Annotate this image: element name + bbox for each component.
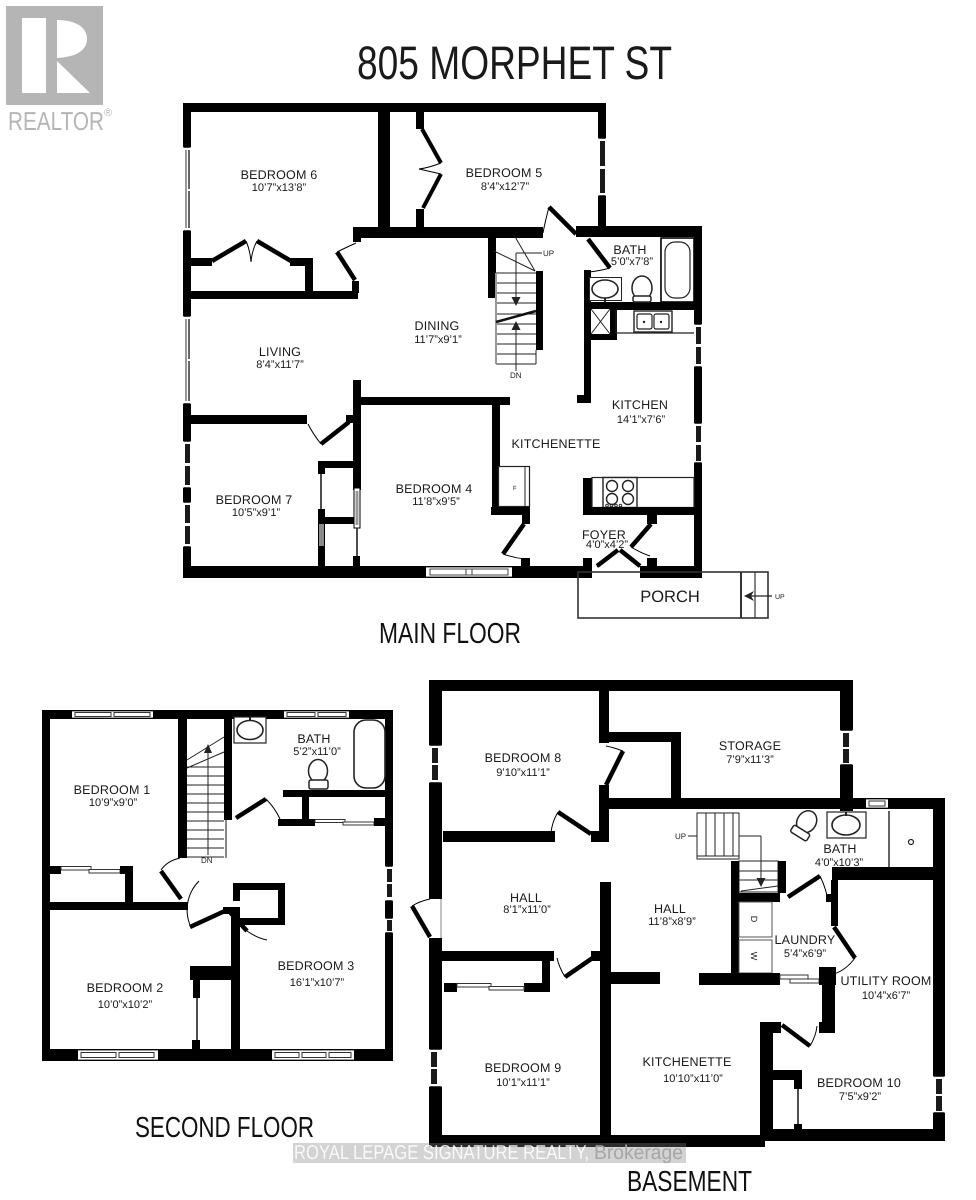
svg-text:BEDROOM 3: BEDROOM 3 (278, 959, 355, 973)
svg-text:BATH: BATH (297, 732, 330, 746)
svg-text:F: F (513, 485, 517, 492)
svg-text:BEDROOM 10: BEDROOM 10 (817, 1076, 901, 1090)
svg-text:5’0”x7’8”: 5’0”x7’8” (611, 256, 654, 268)
svg-text:KITCHEN: KITCHEN (612, 398, 668, 412)
svg-text:11’8”x8’9”: 11’8”x8’9” (648, 916, 696, 928)
svg-text:PORCH: PORCH (640, 588, 700, 606)
svg-text:ROYAL LEPAGE SIGNATURE REALTY,: ROYAL LEPAGE SIGNATURE REALTY, (294, 1142, 589, 1164)
svg-text:D: D (749, 916, 759, 923)
svg-text:BEDROOM 4: BEDROOM 4 (396, 482, 473, 496)
svg-text:5’2”x11’0”: 5’2”x11’0” (293, 746, 341, 758)
svg-text:HALL: HALL (510, 891, 542, 905)
svg-text:10’4”x6’7”: 10’4”x6’7” (862, 990, 911, 1002)
svg-text:UP: UP (675, 832, 686, 841)
svg-text:10’10”x11’0”: 10’10”x11’0” (663, 1073, 723, 1085)
svg-text:9’10”x11’1”: 9’10”x11’1” (496, 767, 550, 779)
svg-text:BEDROOM 8: BEDROOM 8 (485, 751, 562, 765)
svg-text:Brokerage: Brokerage (594, 1142, 683, 1164)
svg-text:10’0”x10’2”: 10’0”x10’2” (98, 999, 153, 1011)
svg-text:4’0”x4’2”: 4’0”x4’2” (586, 539, 629, 551)
svg-text:STORAGE: STORAGE (719, 739, 781, 753)
svg-text:UP: UP (775, 594, 785, 601)
svg-text:16’1”x10’7”: 16’1”x10’7” (290, 977, 345, 989)
svg-text:LAUNDRY: LAUNDRY (775, 933, 836, 947)
svg-text:805 MORPHET ST: 805 MORPHET ST (357, 36, 672, 89)
svg-text:W: W (749, 952, 759, 961)
svg-text:10’5”x9’1”: 10’5”x9’1” (232, 507, 281, 519)
svg-text:UTILITY ROOM: UTILITY ROOM (840, 974, 931, 988)
svg-text:10’9”x9’0”: 10’9”x9’0” (89, 797, 138, 809)
svg-text:10’7”x13’8”: 10’7”x13’8” (252, 182, 307, 194)
svg-text:MAIN FLOOR: MAIN FLOOR (379, 618, 521, 650)
svg-text:8’1”x11’0”: 8’1”x11’0” (503, 904, 551, 916)
svg-text:®: ® (104, 107, 112, 119)
svg-text:BEDROOM 1: BEDROOM 1 (74, 783, 151, 797)
svg-text:DINING: DINING (415, 319, 460, 333)
svg-text:8’4”x11’7”: 8’4”x11’7” (256, 359, 304, 371)
svg-text:HALL: HALL (654, 902, 686, 916)
svg-text:10’1”x11’1”: 10’1”x11’1” (496, 1077, 550, 1089)
svg-text:UP: UP (543, 249, 554, 258)
svg-text:BEDROOM 9: BEDROOM 9 (485, 1061, 562, 1075)
svg-text:14’1”x7’6”: 14’1”x7’6” (617, 414, 666, 426)
svg-text:4’0”x10’3”: 4’0”x10’3” (815, 857, 864, 869)
svg-text:BEDROOM 6: BEDROOM 6 (241, 168, 318, 182)
svg-text:DN: DN (201, 856, 213, 865)
svg-text:11’7”x9’1”: 11’7”x9’1” (414, 334, 462, 346)
svg-text:SECOND FLOOR: SECOND FLOOR (135, 1112, 314, 1144)
svg-text:LIVING: LIVING (259, 345, 301, 359)
svg-text:BATH: BATH (823, 842, 856, 856)
svg-text:BEDROOM 7: BEDROOM 7 (216, 493, 293, 507)
svg-text:BEDROOM 2: BEDROOM 2 (87, 981, 164, 995)
svg-text:REALTOR: REALTOR (8, 106, 104, 136)
svg-text:BATH: BATH (613, 243, 646, 257)
svg-text:7’5”x9’2”: 7’5”x9’2” (839, 1091, 882, 1103)
svg-text:KITCHENETTE: KITCHENETTE (642, 1055, 731, 1069)
svg-text:11’8”x9’5”: 11’8”x9’5” (412, 496, 460, 508)
svg-text:5’4”x6’9”: 5’4”x6’9” (784, 948, 827, 960)
svg-text:BASEMENT: BASEMENT (627, 1166, 752, 1198)
svg-text:8’4”x12’7”: 8’4”x12’7” (481, 181, 530, 193)
svg-text:7’9”x11’3”: 7’9”x11’3” (726, 754, 774, 766)
svg-text:BEDROOM 5: BEDROOM 5 (466, 166, 543, 180)
svg-text:KITCHENETTE: KITCHENETTE (511, 437, 600, 451)
svg-text:DN: DN (510, 371, 522, 380)
